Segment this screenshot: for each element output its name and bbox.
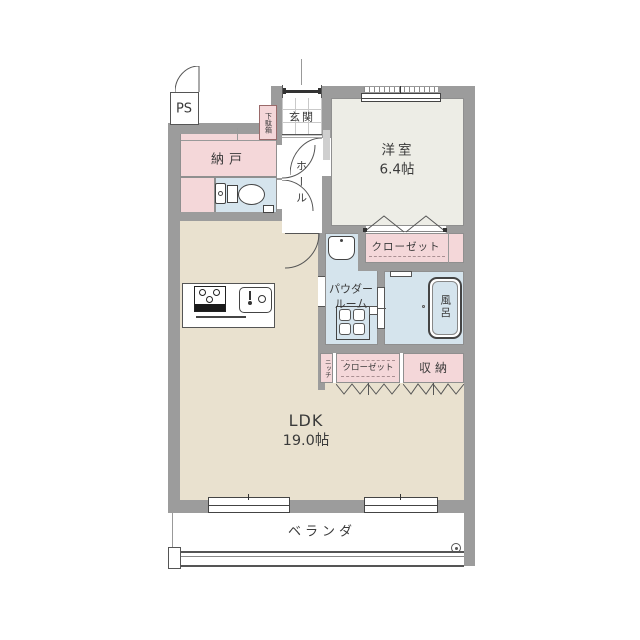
storage-center-tick [433,383,434,395]
toilet-tank [227,185,238,203]
bath-door-fold-line [378,308,386,309]
sink-drain-icon [258,295,266,303]
label-storage: 収納 [419,362,451,374]
faucet-base-dot [248,301,252,305]
label-ldk: LDK [289,413,324,429]
wall-right [464,86,475,566]
closet-lower-dash-top [341,360,395,361]
window-ldk-left [208,497,290,513]
washer-pan-pad [353,309,365,321]
ps-door-arc-icon [175,66,200,93]
label-powder-room-2: ルーム [335,299,368,310]
washer-pan-pad [339,323,351,335]
closet-upper-divider [448,233,449,263]
room-veranda [180,513,464,566]
ldk-door-arc-icon [285,233,320,269]
window-ldk-right [364,497,438,513]
window-western-tick [400,86,401,93]
label-ldk-size: 19.0帖 [283,434,330,449]
label-hall: ホール [296,160,307,208]
kitchen-sink [239,287,272,313]
label-storage-room: 納戸 [211,154,247,167]
bath-drain-dot [422,305,425,308]
label-niche: ニッチ [324,358,331,378]
storage-room-divider-line [181,140,276,141]
label-shoe-cabinet: 下駄箱 [265,113,272,134]
toilet-bowl [238,184,265,205]
closet-upper-hanger-dash [369,256,445,257]
window-ldk-left-tick [248,494,249,500]
opening-powder-door [318,276,325,307]
toilet-basin-drain [218,191,223,196]
label-entrance: 玄関 [289,112,315,123]
label-western-room: 洋室 [382,144,415,158]
bath-door [377,287,385,329]
wall-closet-bath [358,263,464,271]
toilet-corner-basin [215,183,226,204]
label-closet-upper: クローゼット [372,242,441,253]
label-bath: 風呂 [440,295,451,320]
toilet-remote-box [263,205,274,213]
wall-closet-top-b [446,226,464,233]
label-ps: PS [176,103,192,116]
wall-above-closet-strip [318,345,464,353]
label-western-room-size: 6.4帖 [380,163,415,177]
storage-room-divider-tick [237,128,238,140]
entrance-door [282,85,322,98]
label-powder-room-1: パウダー [329,284,373,295]
balcony-pillar [168,547,181,569]
balcony-rail-top [181,551,464,553]
washer-pan [336,306,370,340]
window-western [361,93,441,102]
faucet-icon [249,291,251,300]
bath-shelf [390,271,412,277]
washer-pan-pad [339,309,351,321]
entrance-approach-line [301,59,302,85]
room-ldk-lower [322,383,464,500]
washer-pan-pad [353,323,365,335]
stove [194,286,226,312]
closet-lower-center-tick [368,383,369,395]
floor-plan: PS 下駄箱 玄関 納戸 ホール 洋室 6.4帖 クローゼット パウダー ルーム… [0,0,640,640]
entrance-door-slab [285,90,319,93]
folding-door-icon [363,214,447,233]
label-veranda: ベランダ [288,526,356,539]
balcony-side-line [172,513,173,547]
entrance-door-jamb-left [283,88,286,94]
bath-door-handle [369,306,378,315]
wall-below-storage [180,212,280,221]
counter-edge-line [196,316,246,318]
burner-icon [206,296,213,303]
window-ldk-right-tick [400,494,401,500]
label-closet-lower: クローゼット [342,364,393,373]
balcony-rail-mid [181,556,464,557]
wall-niche-panel [323,130,330,160]
room-storage-room-lower [180,177,215,213]
burner-icon [199,289,206,296]
shutter-box [363,86,439,93]
stove-grill-band [195,304,225,311]
entrance-door-jamb-right [318,88,321,94]
washbasin [328,236,355,260]
closet-lower-dash-bottom [341,376,395,377]
balcony-drain-dot [455,547,458,550]
entrance-step-line-1 [282,134,322,135]
burner-icon [213,289,220,296]
balcony-rail-bottom [181,565,464,567]
balcony-drain-icon [451,543,461,553]
wall-left [168,123,180,513]
washbasin-faucet-dot [340,239,343,242]
